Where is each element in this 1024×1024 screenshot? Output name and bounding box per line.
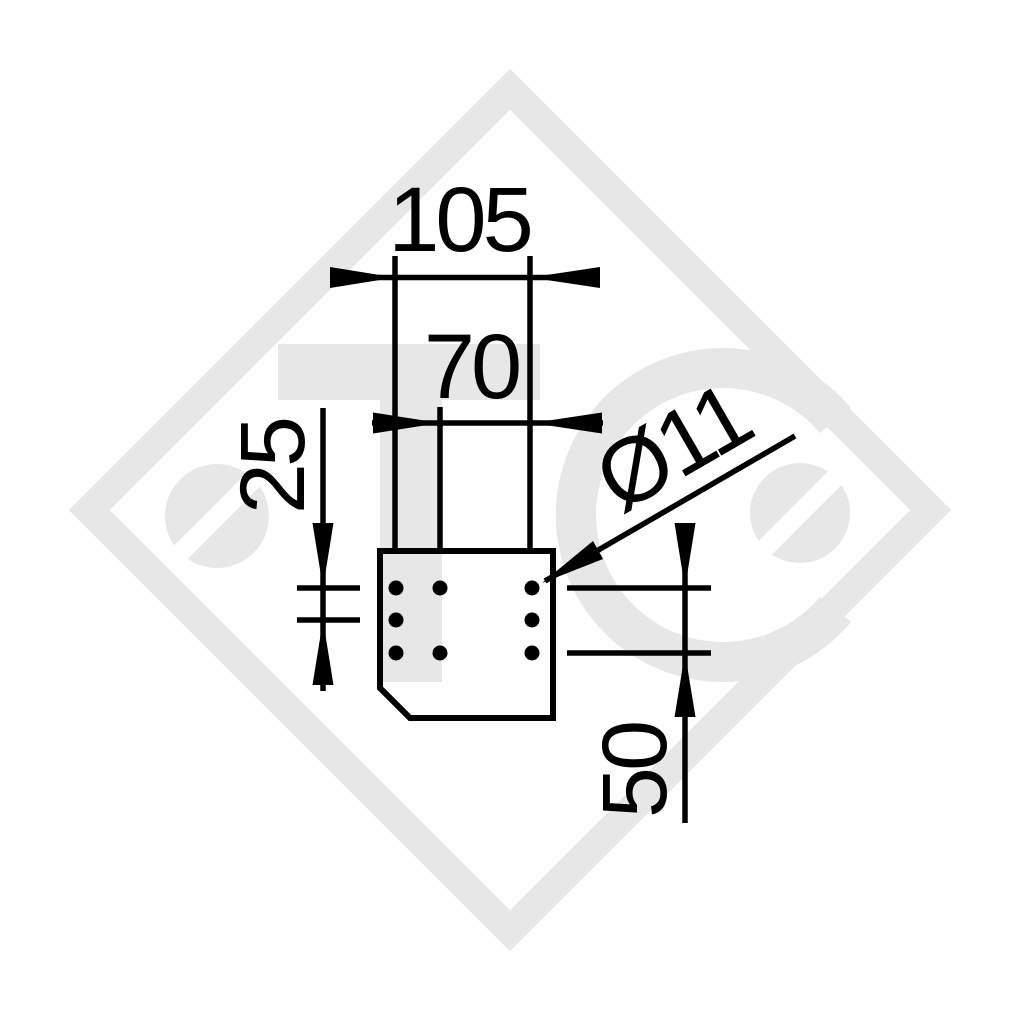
arrow-105-right	[530, 267, 600, 288]
arrow-70-right	[532, 413, 602, 434]
hole-right-bottom	[525, 646, 540, 661]
dim-label-hole-diameter: Ø11	[579, 364, 767, 531]
hole-left-middle	[389, 613, 404, 628]
hole-center-top	[433, 581, 448, 596]
dim-label-105: 105	[388, 169, 530, 271]
drawing-svg: 105 70 25 50 Ø11	[0, 0, 1024, 1024]
technical-drawing: 105 70 25 50 Ø11	[0, 0, 1024, 1024]
hole-left-top	[389, 581, 404, 596]
dim-label-70: 70	[424, 316, 519, 418]
hole-left-bottom	[389, 646, 404, 661]
dim-label-25: 25	[222, 419, 324, 514]
arrow-50-down	[675, 523, 696, 588]
hole-right-middle	[525, 613, 540, 628]
hole-center-bottom	[433, 646, 448, 661]
arrow-25-down	[313, 523, 334, 588]
hole-right-top	[525, 581, 540, 596]
arrow-105-left	[330, 267, 395, 288]
arrow-25-up	[313, 620, 334, 685]
dim-label-50: 50	[584, 723, 686, 818]
